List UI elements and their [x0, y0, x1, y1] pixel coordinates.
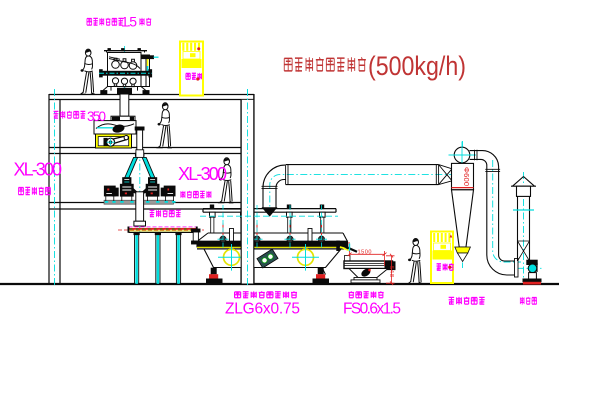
svg-text:XL-300: XL-300	[178, 164, 227, 184]
svg-text:(500kg/h): (500kg/h)	[368, 51, 466, 81]
svg-text:1.5: 1.5	[121, 14, 137, 30]
svg-text:Φ600: Φ600	[462, 167, 471, 186]
svg-text:XL-300: XL-300	[14, 160, 63, 180]
svg-text:ZLG6x0.75: ZLG6x0.75	[225, 301, 300, 318]
svg-text:FS0.6x1.5: FS0.6x1.5	[343, 301, 401, 318]
svg-text:350: 350	[87, 109, 106, 124]
svg-text:1500: 1500	[358, 250, 372, 256]
svg-text:548: 548	[388, 266, 394, 277]
